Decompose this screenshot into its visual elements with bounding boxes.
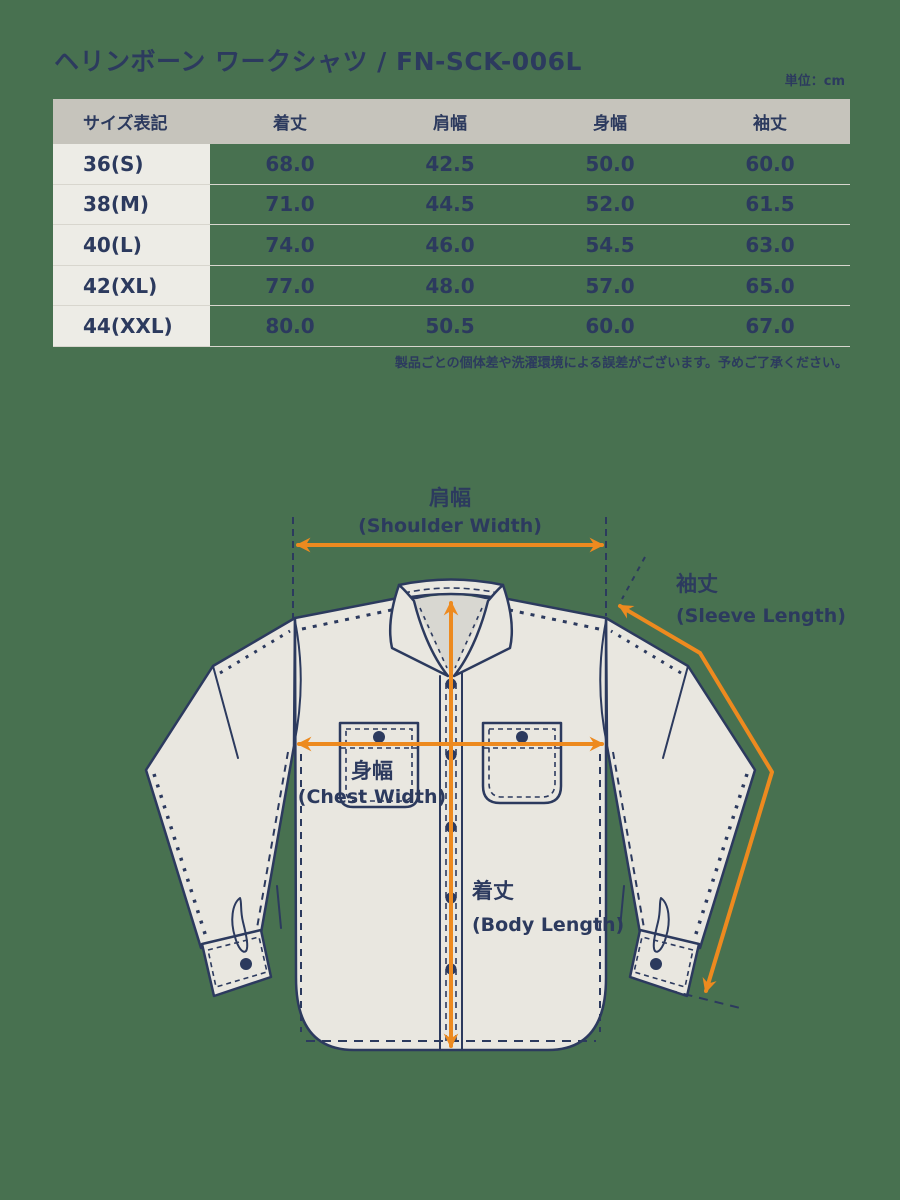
- shoulder-width-label-en: (Shoulder Width): [358, 515, 542, 537]
- shirt-measurement-diagram: 肩幅 (Shoulder Width) 袖丈 (Sleeve Length) 身…: [0, 0, 900, 1200]
- body-length-label-jp: 着丈: [471, 879, 514, 903]
- chest-width-label-jp: 身幅: [351, 759, 393, 783]
- left-sleeve: [146, 618, 295, 948]
- chest-width-label-en: (Chest Width): [298, 786, 446, 808]
- size-chart-page: { "page": { "title": "ヘリンボーン ワークシャツ / FN…: [0, 0, 900, 1200]
- sleeve-length-label-jp: 袖丈: [676, 572, 718, 596]
- sleeve-shoulder-guide: [622, 557, 645, 599]
- left-sleeve-placket-slit: [277, 886, 281, 928]
- body-length-label-en: (Body Length): [472, 914, 624, 936]
- sleeve-length-label-en: (Sleeve Length): [676, 605, 846, 627]
- shoulder-width-label-jp: 肩幅: [429, 486, 471, 510]
